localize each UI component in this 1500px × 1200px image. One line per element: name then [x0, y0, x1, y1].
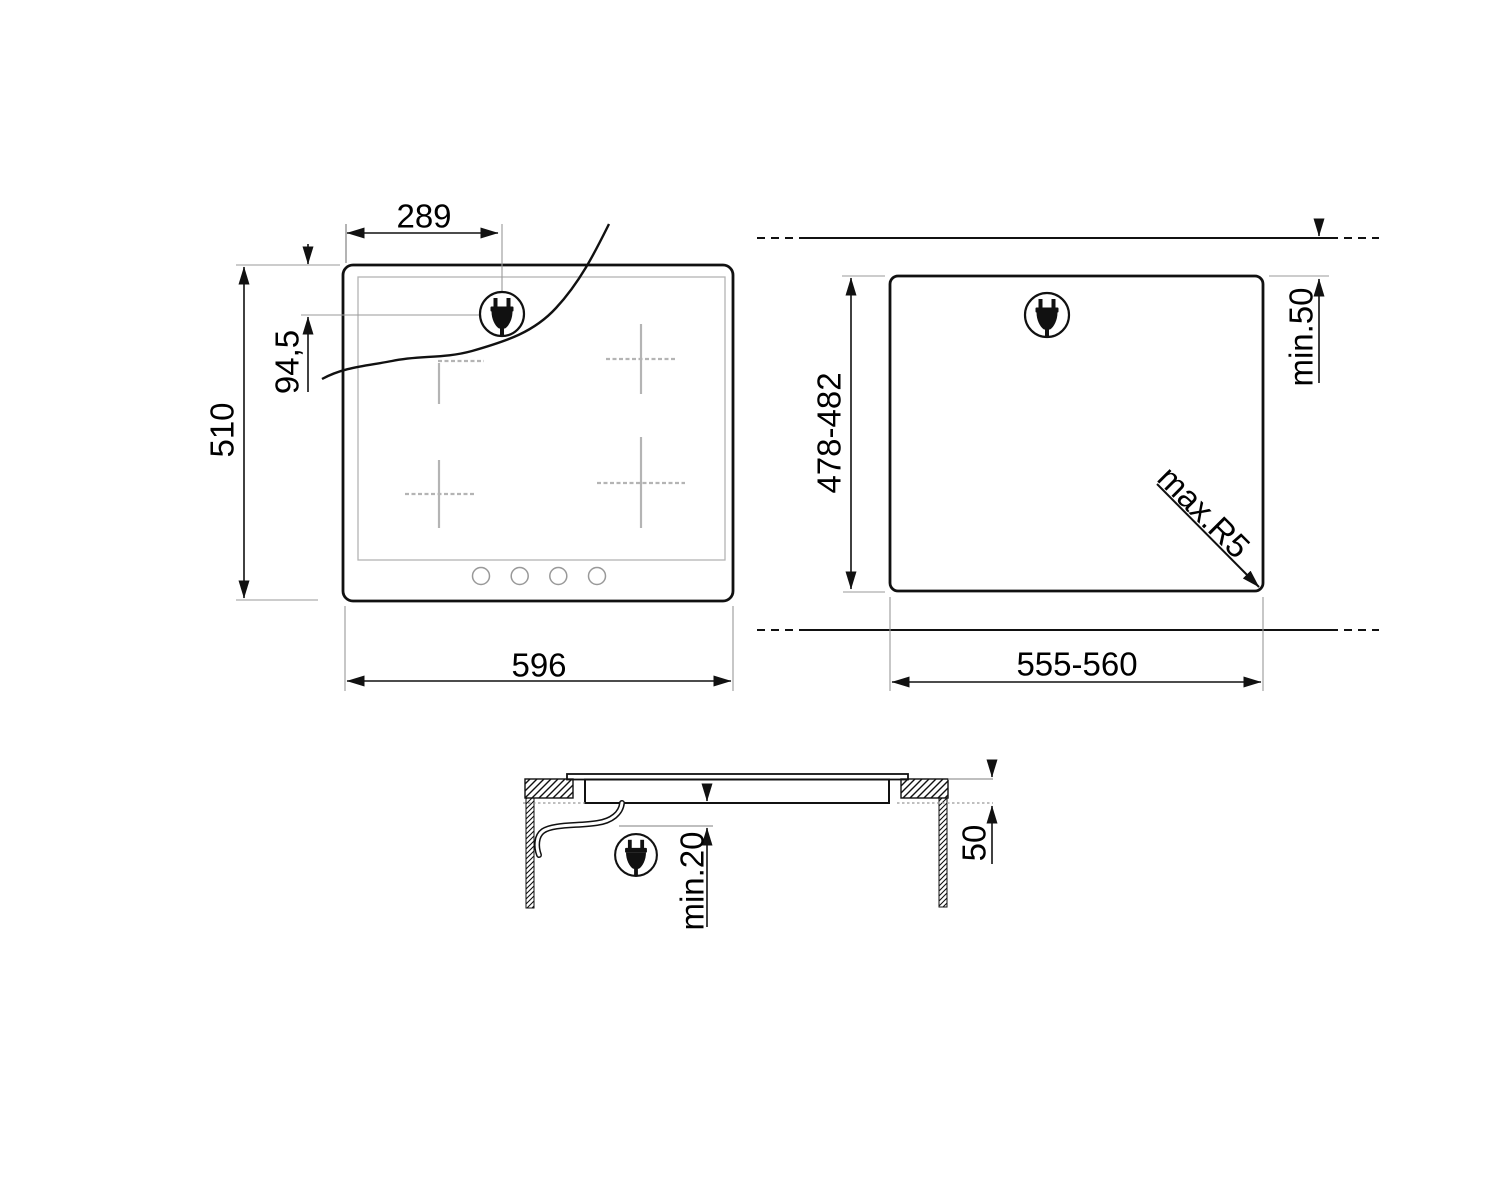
dimension-label-clearance-below: min.20: [676, 831, 709, 930]
dimension-label-rear-clearance: min.50: [1285, 287, 1318, 386]
dimension-label-hob-width: 596: [511, 649, 566, 682]
dimension-label-hob-depth: 510: [206, 402, 239, 457]
technical-drawing-canvas: [0, 0, 1500, 1200]
cabinet-panel-left: [526, 798, 534, 908]
power-plug-icon: [1025, 293, 1069, 337]
worktop-section-left: [525, 779, 573, 798]
dimension-478-482: [842, 276, 885, 592]
installation-drawing-page: 289 94,5 510 596 478-482 min.50 max.R5 5…: [0, 0, 1500, 1200]
power-plug-icon: [480, 292, 524, 336]
cabinet-panel-right: [939, 798, 947, 907]
power-plug-icon: [615, 834, 657, 876]
dimension-label-plug-offset-y: 94,5: [271, 330, 304, 394]
power-cable: [537, 803, 622, 855]
cutout-outline: [890, 276, 1263, 591]
dimension-label-worktop-thickness: 50: [958, 825, 991, 862]
dimension-label-plug-offset-x: 289: [396, 200, 451, 233]
dimension-label-cutout-depth: 478-482: [813, 372, 846, 493]
dimension-label-cutout-width: 555-560: [1016, 648, 1137, 681]
hob-body-section: [585, 780, 889, 804]
worktop-section-right: [901, 779, 948, 798]
installation-section-view: [523, 765, 993, 927]
hob-front-view: [236, 224, 733, 691]
